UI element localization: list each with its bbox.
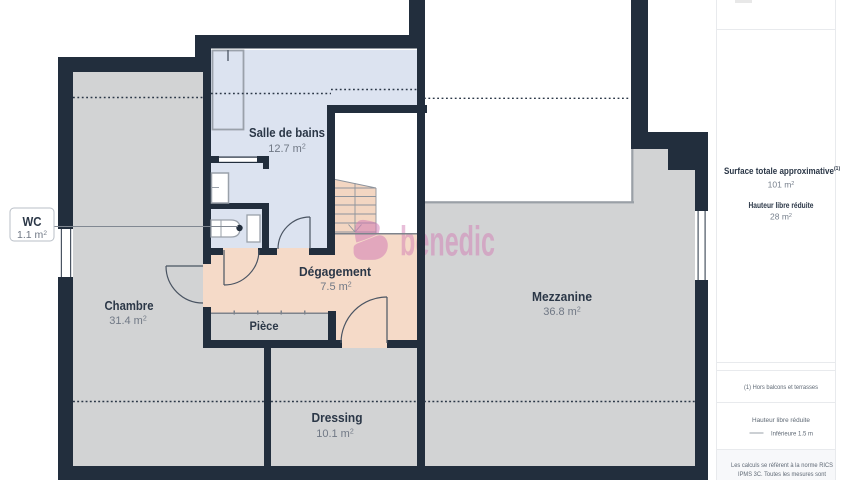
svg-text:101 m2: 101 m2 [768, 180, 795, 190]
svg-text:7.5 m2: 7.5 m2 [320, 281, 352, 293]
svg-text:Hauteur libre réduite: Hauteur libre réduite [749, 200, 814, 210]
svg-text:Surface totale approximative: Surface totale approximative [724, 166, 834, 176]
svg-text:Hauteur libre réduite: Hauteur libre réduite [752, 417, 810, 424]
svg-text:Pièce: Pièce [250, 319, 279, 333]
svg-text:Dégagement: Dégagement [299, 265, 372, 279]
svg-text:Mezzanine: Mezzanine [532, 290, 592, 304]
svg-text:benedic: benedic [400, 218, 495, 265]
svg-text:Inférieure 1.5 m: Inférieure 1.5 m [771, 431, 813, 438]
svg-text:36.8 m2: 36.8 m2 [543, 306, 581, 318]
svg-text:(1): (1) [834, 166, 840, 172]
svg-text:Dressing: Dressing [312, 411, 363, 425]
svg-text:12.7 m2: 12.7 m2 [268, 143, 306, 155]
svg-text:31.4 m2: 31.4 m2 [109, 315, 147, 327]
svg-text:Chambre: Chambre [105, 299, 154, 313]
svg-text:Salle de bains: Salle de bains [249, 126, 325, 140]
svg-text:1.1 m2: 1.1 m2 [17, 229, 47, 241]
svg-text:IPMS 3C. Toutes les mesures so: IPMS 3C. Toutes les mesures sont [738, 472, 826, 478]
svg-text:28 m2: 28 m2 [770, 212, 792, 222]
svg-text:Les calculs se réfèrent à la n: Les calculs se réfèrent à la norme RICS [731, 463, 833, 469]
svg-text:WC: WC [23, 214, 43, 229]
svg-text:(1) Hors balcons et terrasses: (1) Hors balcons et terrasses [744, 384, 819, 391]
svg-text:10.1 m2: 10.1 m2 [316, 428, 354, 440]
